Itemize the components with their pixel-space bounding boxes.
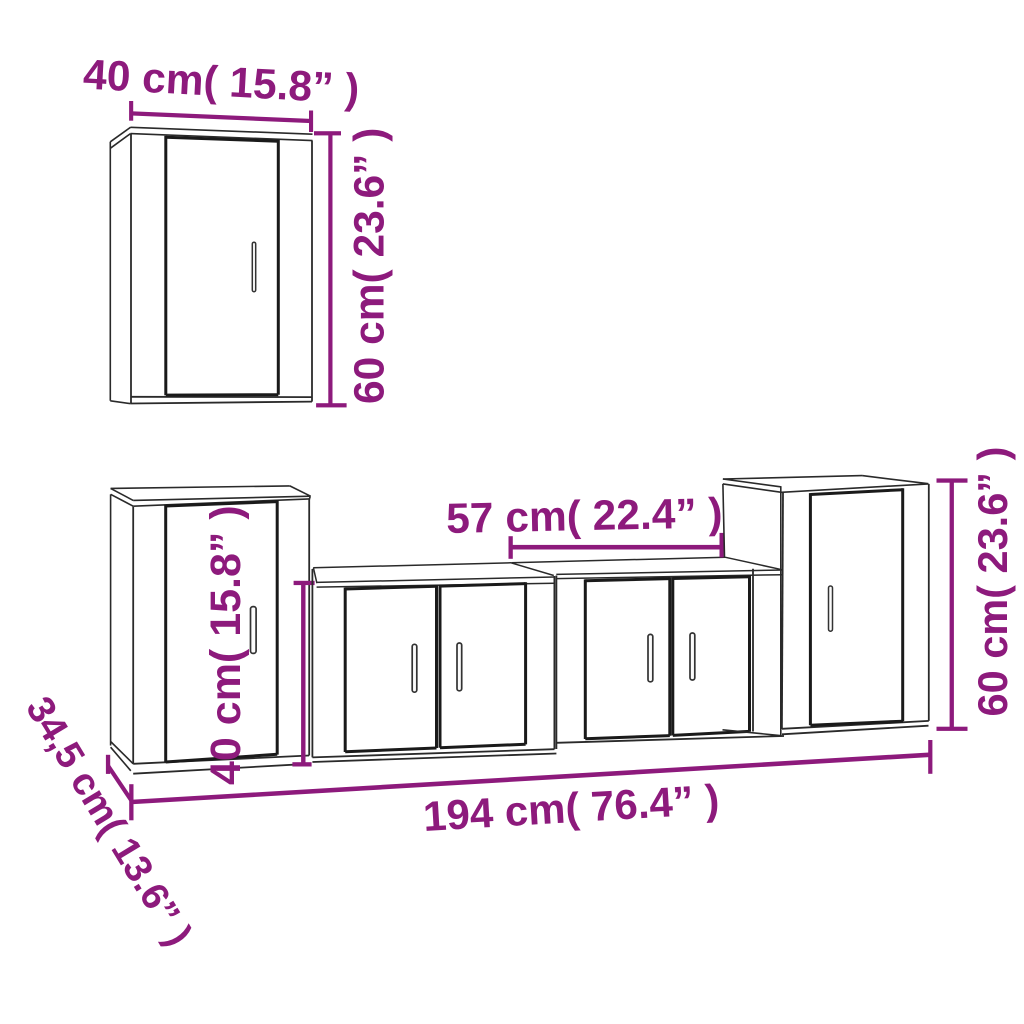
svg-text:57 cm( 22.4” ): 57 cm( 22.4” ) bbox=[446, 490, 723, 543]
svg-text:40 cm( 15.8” ): 40 cm( 15.8” ) bbox=[202, 505, 250, 785]
svg-text:60 cm( 23.6” ): 60 cm( 23.6” ) bbox=[347, 128, 394, 404]
svg-text:60 cm( 23.6” ): 60 cm( 23.6” ) bbox=[969, 447, 1016, 717]
